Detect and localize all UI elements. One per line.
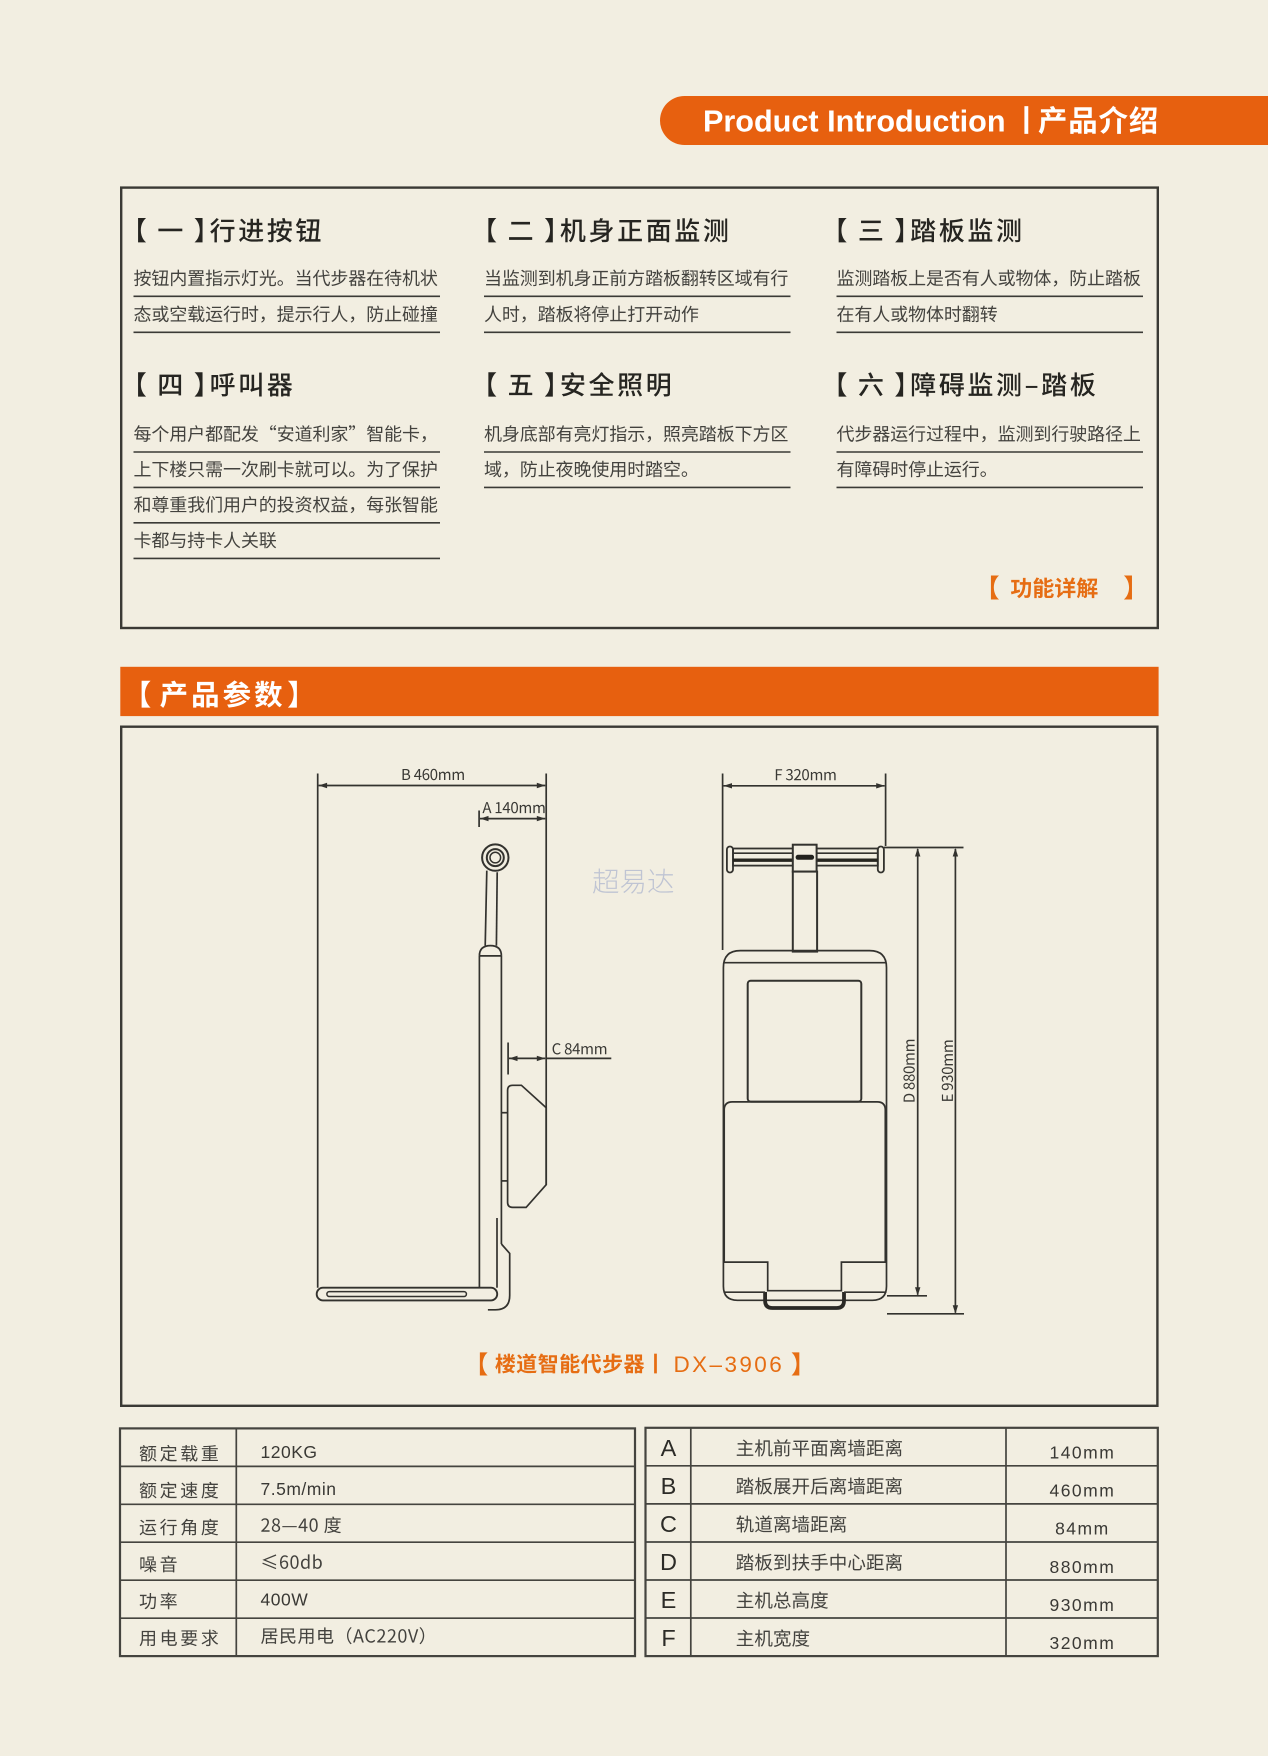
- svg-text:460mm: 460mm: [1049, 1481, 1115, 1501]
- svg-text:E: E: [661, 1587, 677, 1613]
- svg-text:84mm: 84mm: [1055, 1519, 1110, 1539]
- svg-text:Product Introduction: Product Introduction: [703, 105, 1006, 139]
- svg-text:C: C: [660, 1511, 677, 1537]
- svg-text:DX–3906: DX–3906: [674, 1352, 785, 1377]
- svg-text:320mm: 320mm: [1049, 1633, 1115, 1653]
- svg-text:140mm: 140mm: [1049, 1443, 1115, 1463]
- svg-text:D: D: [660, 1549, 677, 1575]
- svg-text:930mm: 930mm: [1049, 1595, 1115, 1615]
- svg-text:7.5m/min: 7.5m/min: [261, 1479, 337, 1499]
- svg-text:F: F: [661, 1625, 675, 1651]
- svg-text:120KG: 120KG: [261, 1442, 318, 1462]
- svg-text:A: A: [661, 1435, 677, 1461]
- svg-text:B: B: [661, 1473, 677, 1499]
- svg-text:880mm: 880mm: [1049, 1557, 1115, 1577]
- svg-text:400W: 400W: [261, 1590, 309, 1610]
